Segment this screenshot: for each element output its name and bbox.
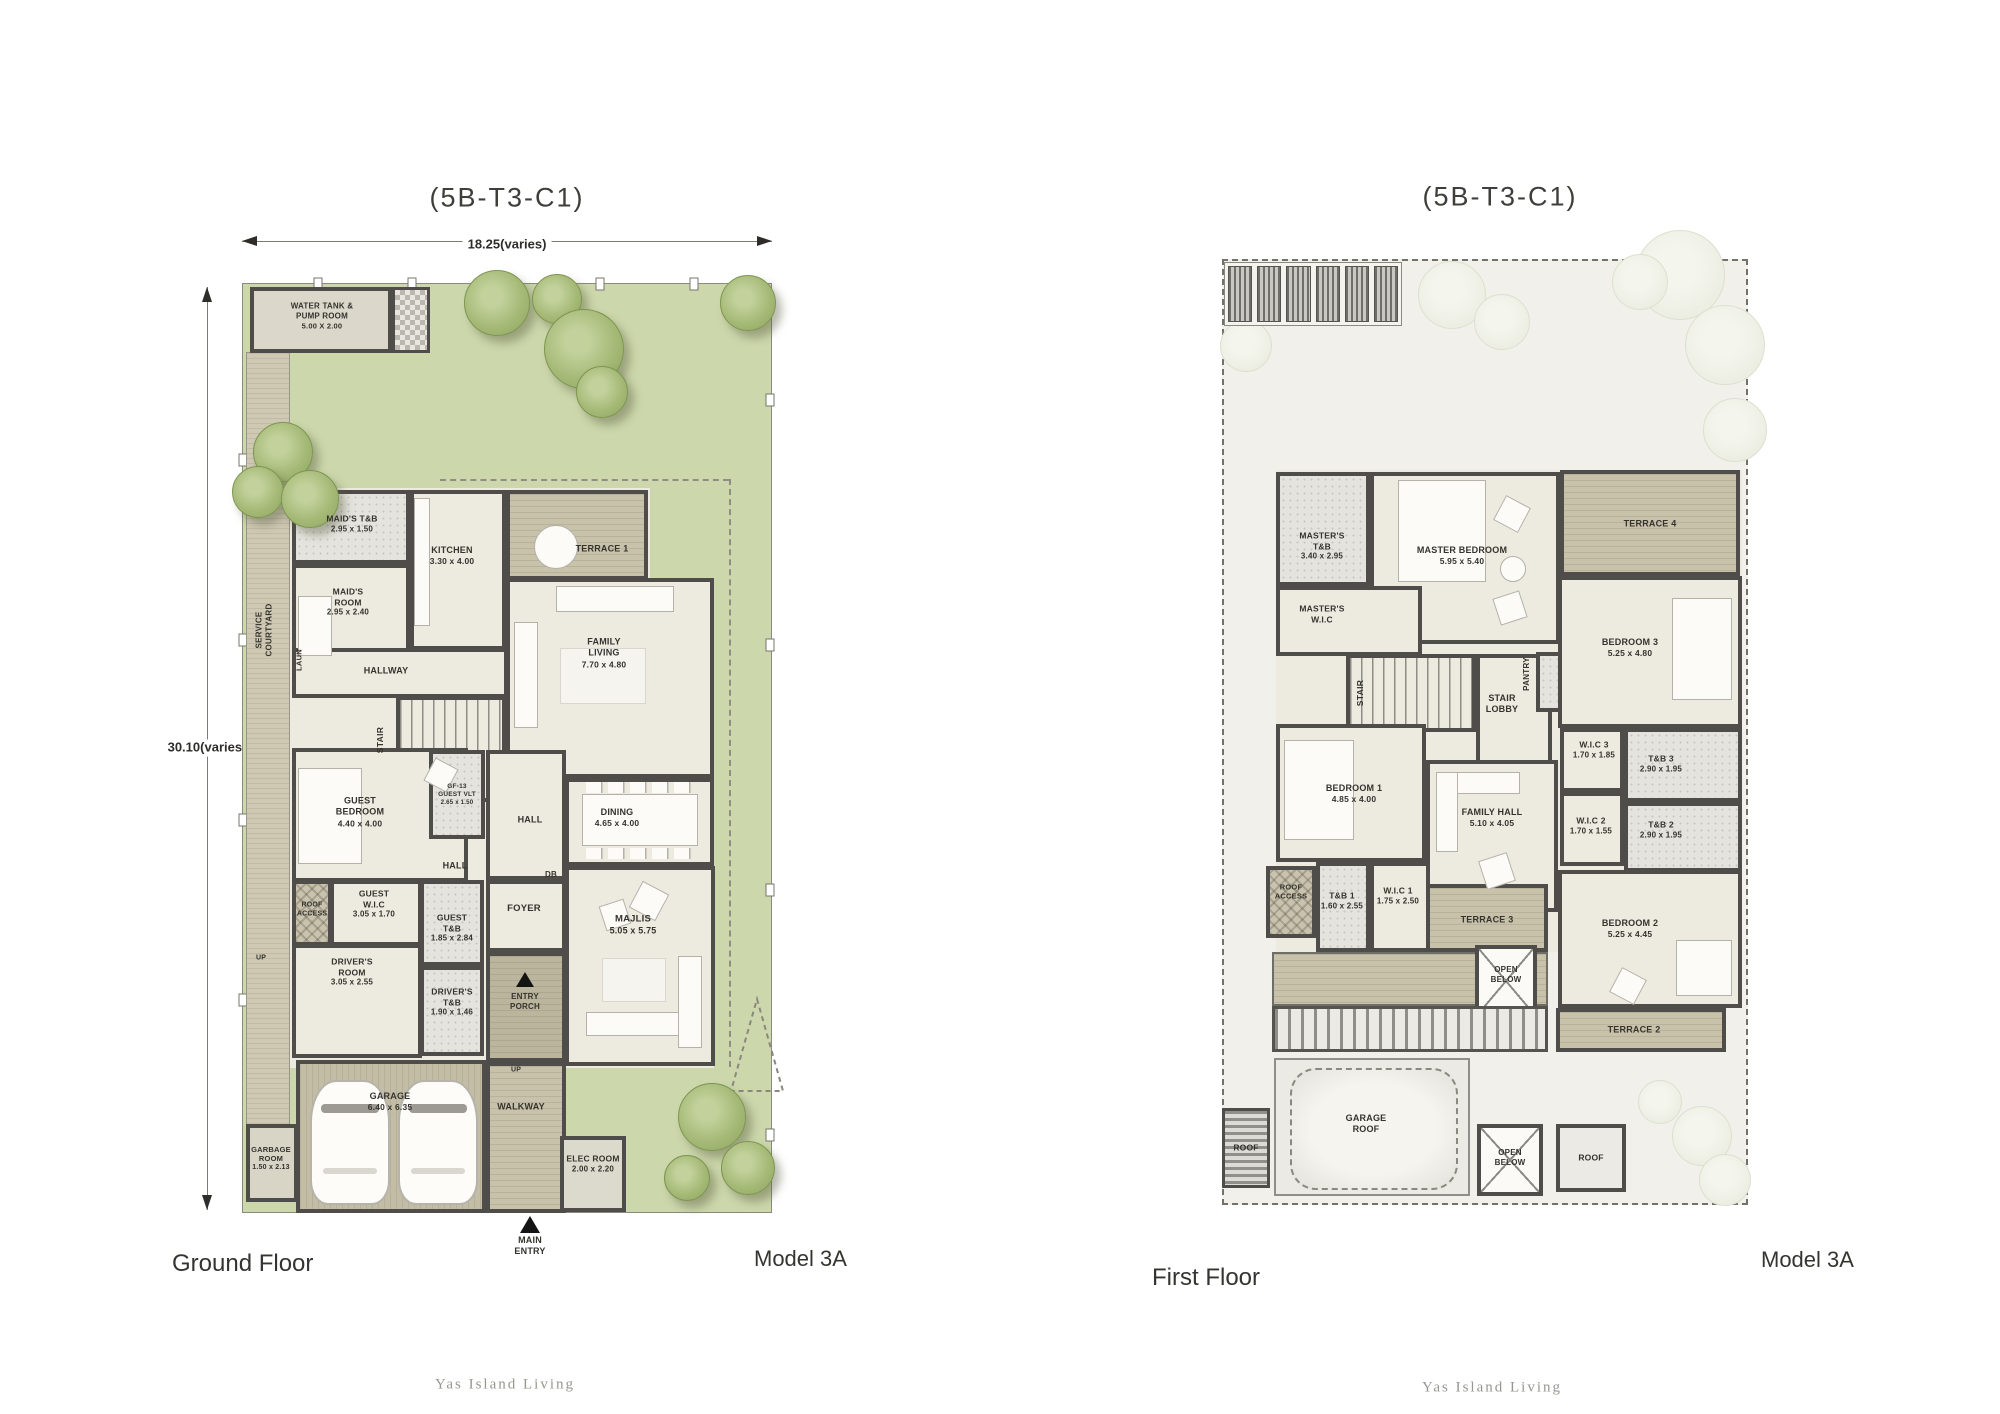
pergola-panel (1345, 266, 1369, 322)
room-masters-tb (1276, 472, 1370, 586)
floor-label-left: Ground Floor (172, 1250, 313, 1278)
room-name: GARAGE ROOF (1346, 1113, 1387, 1136)
label-roof-left: ROOF (1233, 1143, 1258, 1154)
label-wic-1: W.I.C 11.75 x 2.50 (1377, 886, 1419, 907)
tree-icon (1685, 305, 1765, 385)
label-stair-lobby: STAIR LOBBY (1486, 693, 1519, 716)
room-dims: 5.25 x 4.80 (1602, 648, 1658, 659)
brand-left: Yas Island Living (435, 1377, 575, 1394)
room-name: OPEN BELOW (1491, 965, 1522, 985)
room-wic-1 (1370, 862, 1430, 952)
room-dims: 5.10 x 4.05 (1462, 818, 1523, 829)
room-name: ROOF (1578, 1153, 1603, 1164)
room-dims: 5.95 x 5.40 (1417, 556, 1507, 567)
label-garage-roof: GARAGE ROOF (1346, 1113, 1387, 1136)
room-name: W.I.C 3 (1573, 740, 1615, 751)
room-stair-ff (1346, 654, 1476, 732)
tree-icon (1699, 1154, 1751, 1206)
room-name: OPEN BELOW (1495, 1148, 1526, 1168)
model-label-left: Model 3A (754, 1246, 847, 1272)
label-masters-wic: MASTER'S W.I.C (1299, 603, 1344, 624)
label-roof-access-ff: ROOF ACCESS (1275, 883, 1307, 902)
room-name: T&B 3 (1640, 754, 1682, 765)
label-wic-3: W.I.C 31.70 x 1.85 (1573, 740, 1615, 761)
room-name: BEDROOM 2 (1602, 918, 1658, 929)
room-dims: 1.70 x 1.85 (1573, 750, 1615, 760)
label-stair-ff: STAIR (1355, 680, 1365, 706)
balustrade (1272, 1006, 1548, 1052)
label-tb-2: T&B 22.90 x 1.95 (1640, 820, 1682, 841)
label-masters-tb: MASTER'S T&B3.40 x 2.95 (1299, 530, 1344, 561)
label-open-below-lower: OPEN BELOW (1495, 1148, 1526, 1168)
room-name: MASTER'S T&B (1299, 530, 1344, 551)
room-name: T&B 1 (1321, 891, 1363, 902)
sofa (1436, 772, 1458, 852)
label-roof-right: ROOF (1578, 1153, 1603, 1164)
room-name: TERRACE 2 (1608, 1024, 1661, 1035)
room-name: ROOF (1233, 1143, 1258, 1154)
room-dims: 1.75 x 2.50 (1377, 896, 1419, 906)
plan-title-right: (5B-T3-C1) (1422, 182, 1577, 213)
model-label-right: Model 3A (1761, 1247, 1854, 1273)
room-dims: 2.90 x 1.95 (1640, 764, 1682, 774)
room-name: STAIR (1355, 680, 1365, 706)
label-family-hall: FAMILY HALL5.10 x 4.05 (1462, 807, 1523, 829)
first-floor-plan: (5B-T3-C1) (0, 0, 2000, 1414)
bed-icon (1676, 940, 1732, 996)
room-name: ROOF ACCESS (1275, 883, 1307, 902)
label-terrace-4: TERRACE 4 (1624, 518, 1677, 529)
pergola-panel (1374, 266, 1398, 322)
floorplan-sheet: (5B-T3-C1) 18.25(varies) 30.10(varies) (0, 0, 2000, 1414)
room-dims: 1.60 x 2.55 (1321, 901, 1363, 911)
label-bedroom-1: BEDROOM 14.85 x 4.00 (1326, 783, 1382, 805)
tree-icon (1638, 1080, 1682, 1124)
label-tb-3: T&B 32.90 x 1.95 (1640, 754, 1682, 775)
tree-icon (1703, 398, 1767, 462)
room-name: FAMILY HALL (1462, 807, 1523, 818)
room-name: BEDROOM 3 (1602, 637, 1658, 648)
label-open-below-upper: OPEN BELOW (1491, 965, 1522, 985)
floor-label-right: First Floor (1152, 1264, 1260, 1292)
tree-icon (1612, 254, 1668, 310)
room-name: T&B 2 (1640, 820, 1682, 831)
label-terrace-3: TERRACE 3 (1461, 914, 1514, 925)
label-pantry: PANTRY (1522, 657, 1532, 691)
label-wic-2: W.I.C 21.70 x 1.55 (1570, 816, 1612, 837)
room-name: TERRACE 3 (1461, 914, 1514, 925)
label-tb-1: T&B 11.60 x 2.55 (1321, 891, 1363, 912)
room-masters-wic (1276, 586, 1422, 656)
room-name: TERRACE 4 (1624, 518, 1677, 529)
pergola-panel (1257, 266, 1281, 322)
tree-icon (1474, 294, 1530, 350)
brand-right: Yas Island Living (1422, 1380, 1562, 1397)
room-name: BEDROOM 1 (1326, 783, 1382, 794)
room-name: STAIR LOBBY (1486, 693, 1519, 716)
room-dims: 3.40 x 2.95 (1299, 552, 1344, 562)
room-dims: 1.70 x 1.55 (1570, 826, 1612, 836)
room-dims: 4.85 x 4.00 (1326, 794, 1382, 805)
room-dims: 2.90 x 1.95 (1640, 830, 1682, 840)
pergola-louvers (1224, 262, 1402, 326)
label-bedroom-2: BEDROOM 25.25 x 4.45 (1602, 918, 1658, 940)
tree-icon (1220, 320, 1272, 372)
room-name: MASTER BEDROOM (1417, 545, 1507, 556)
label-terrace-2: TERRACE 2 (1608, 1024, 1661, 1035)
pergola-panel (1286, 266, 1310, 322)
room-name: W.I.C 1 (1377, 886, 1419, 897)
room-roof-access-ff (1266, 866, 1316, 938)
label-master-bedroom: MASTER BEDROOM5.95 x 5.40 (1417, 545, 1507, 567)
room-name: W.I.C 2 (1570, 816, 1612, 827)
room-name: PANTRY (1522, 657, 1531, 691)
pergola-panel (1228, 266, 1252, 322)
label-bedroom-3: BEDROOM 35.25 x 4.80 (1602, 637, 1658, 659)
room-dims: 5.25 x 4.45 (1602, 929, 1658, 940)
room-name: MASTER'S W.I.C (1299, 603, 1344, 624)
bed-icon (1672, 598, 1732, 700)
pergola-panel (1316, 266, 1340, 322)
